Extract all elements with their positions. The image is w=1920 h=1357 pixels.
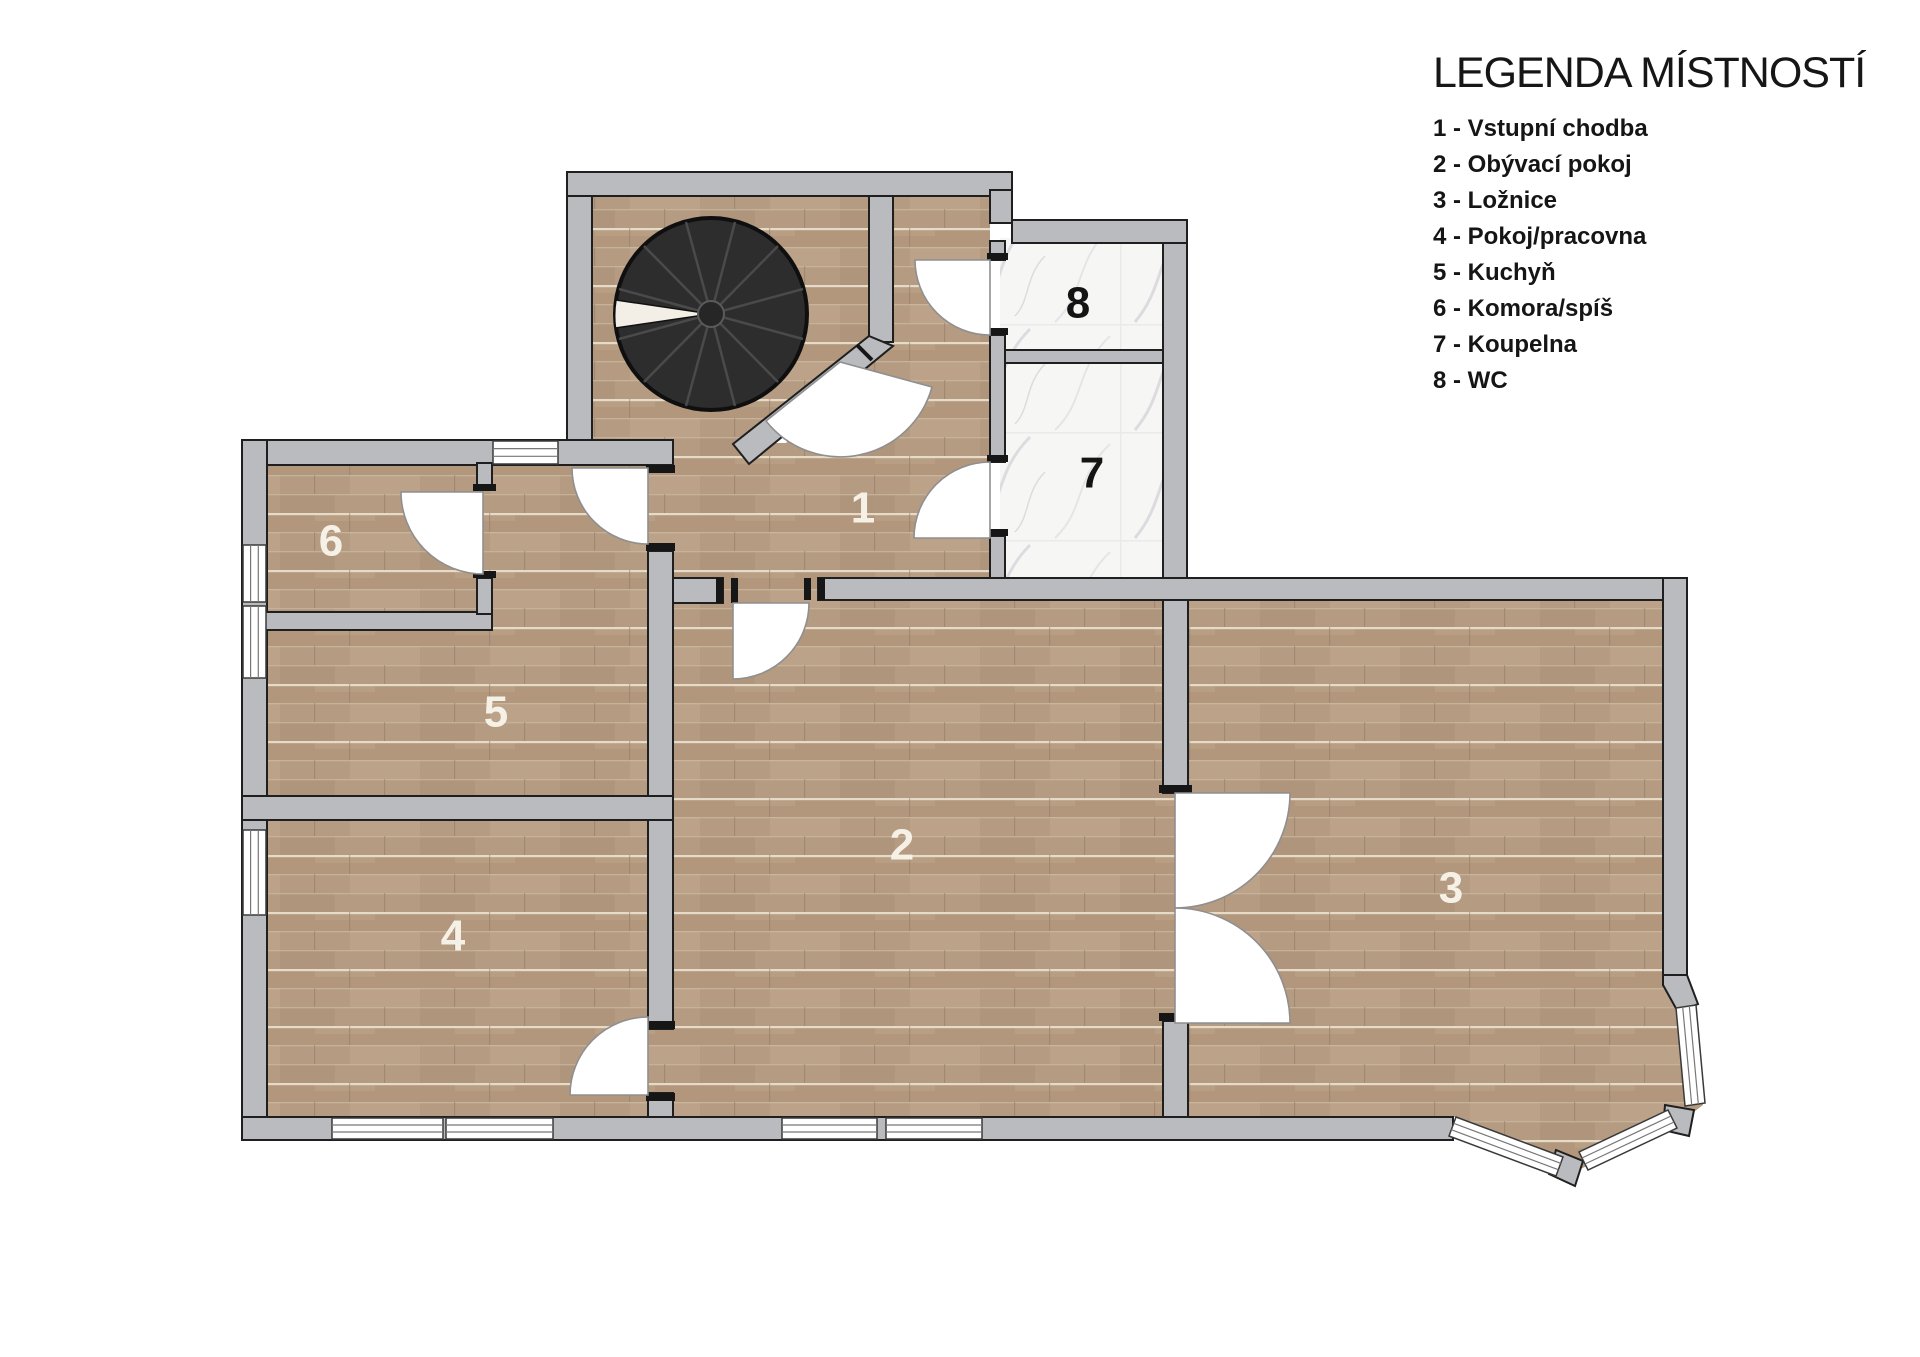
wall (1663, 578, 1687, 985)
wall (1163, 243, 1187, 600)
wall (648, 551, 673, 1029)
window (243, 830, 266, 915)
room-label-living-room: 2 (890, 821, 914, 870)
spiral-staircase-icon (615, 218, 807, 410)
legend-item: 6 - Komora/spíš (1433, 291, 1873, 327)
legend: LEGENDA MÍSTNOSTÍ 1 - Vstupní chodba 2 -… (1433, 52, 1873, 399)
floor-plan-page: 1 2 3 4 5 6 7 8 LEGENDA MÍSTNOSTÍ 1 - Vs… (0, 0, 1920, 1357)
room-label-bathroom: 7 (1080, 449, 1104, 498)
room-label-entry-hall: 1 (851, 484, 875, 533)
window (886, 1118, 982, 1139)
wall (1005, 350, 1163, 363)
legend-items: 1 - Vstupní chodba 2 - Obývací pokoj 3 -… (1433, 111, 1873, 399)
wall (265, 612, 492, 630)
legend-item: 7 - Koupelna (1433, 327, 1873, 363)
legend-title: LEGENDA MÍSTNOSTÍ (1433, 52, 1873, 95)
wall (818, 578, 1687, 600)
legend-item: 8 - WC (1433, 363, 1873, 399)
wall (567, 196, 592, 443)
wall (567, 172, 1012, 196)
window (243, 545, 266, 602)
room-label-bedroom: 3 (1439, 864, 1463, 913)
legend-item: 3 - Ložnice (1433, 183, 1873, 219)
window (332, 1118, 443, 1139)
room-label-kitchen: 5 (484, 688, 508, 737)
legend-item: 5 - Kuchyň (1433, 255, 1873, 291)
legend-item: 2 - Obývací pokoj (1433, 147, 1873, 183)
wall (990, 190, 1012, 223)
wall (673, 578, 723, 603)
legend-item: 1 - Vstupní chodba (1433, 111, 1873, 147)
wall (1163, 600, 1188, 793)
wall (990, 335, 1005, 462)
wall (1163, 1021, 1188, 1117)
wall (242, 440, 673, 465)
room-label-study: 4 (441, 912, 466, 961)
window (243, 606, 266, 678)
window (782, 1118, 877, 1139)
wall (1012, 220, 1187, 243)
wall (869, 196, 893, 342)
room-label-wc: 8 (1066, 279, 1090, 328)
window (446, 1118, 553, 1139)
legend-item: 4 - Pokoj/pracovna (1433, 219, 1873, 255)
wall (990, 536, 1005, 578)
wall (477, 578, 492, 614)
window (493, 441, 558, 464)
wall (242, 796, 673, 820)
room-label-pantry: 6 (319, 517, 343, 566)
